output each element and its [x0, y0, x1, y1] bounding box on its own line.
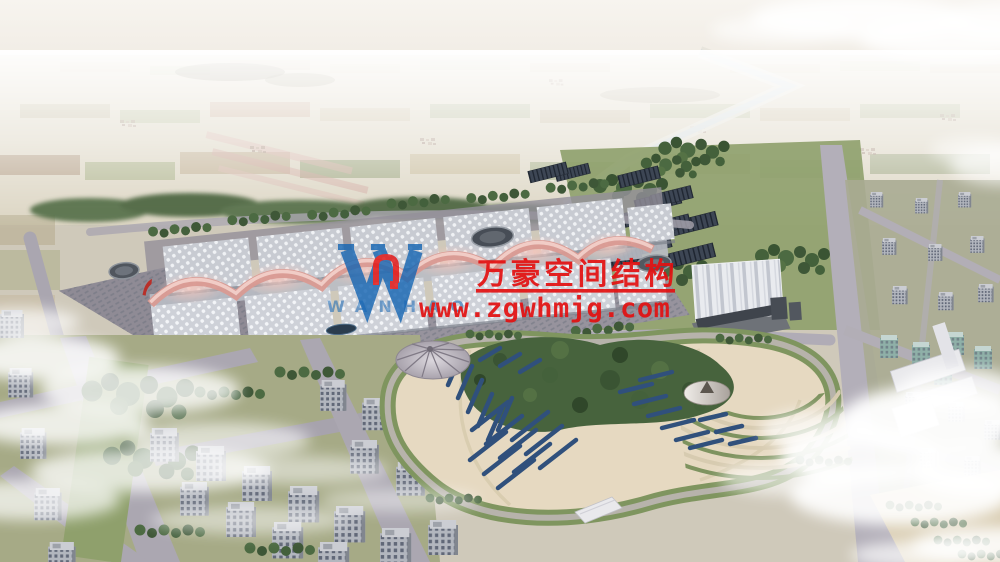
aerial-rendering: WANHAO 万豪空间结构 www.zgwhmjg.com — [0, 0, 1000, 562]
tent-dome — [396, 341, 470, 379]
cone-pavilion — [684, 381, 730, 405]
scene-svg: WANHAO 万豪空间结构 www.zgwhmjg.com — [0, 0, 1000, 562]
watermark-company-name: 万豪空间结构 — [477, 257, 678, 292]
watermark-website: www.zgwhmjg.com — [419, 293, 670, 324]
